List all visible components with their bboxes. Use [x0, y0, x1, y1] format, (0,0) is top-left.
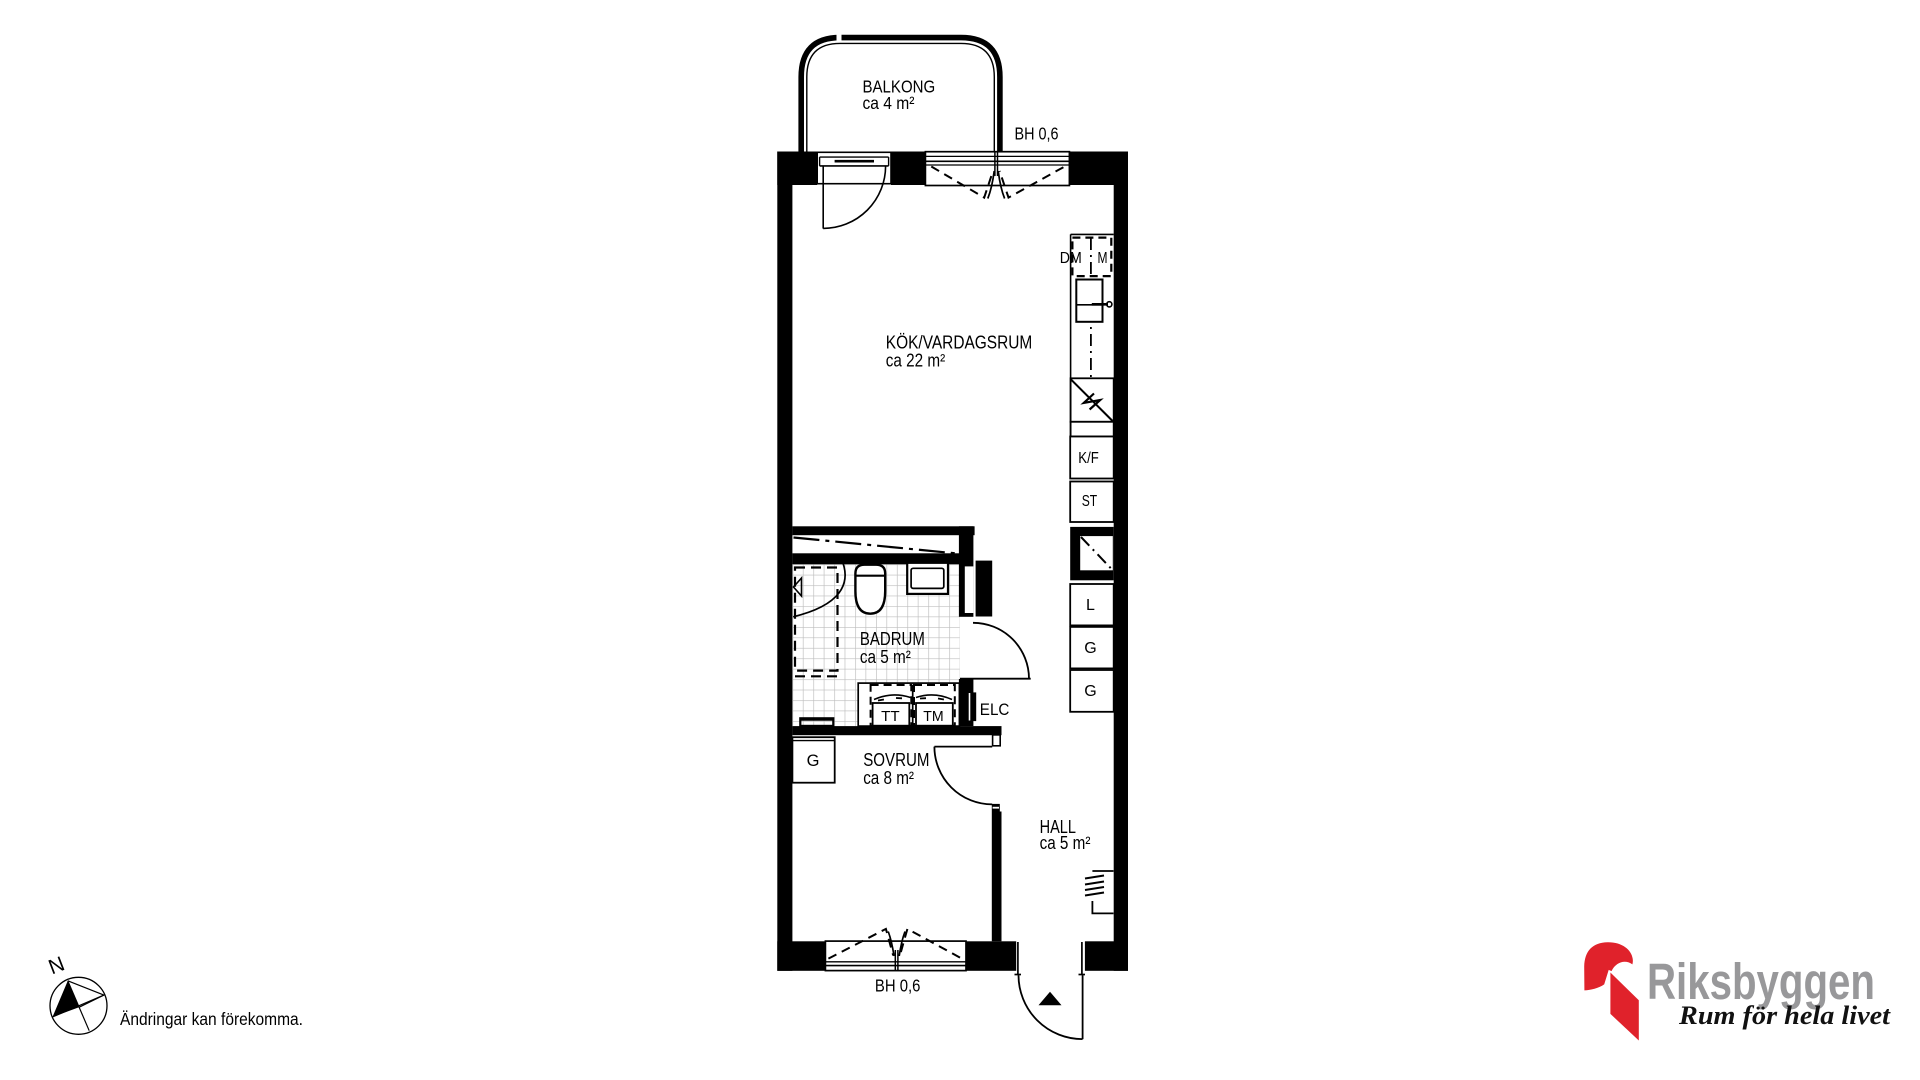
svg-text:TT: TT: [881, 708, 900, 725]
svg-text:SOVRUM: SOVRUM: [863, 750, 929, 770]
svg-text:G: G: [1084, 683, 1096, 700]
svg-text:ca 5 m²: ca 5 m²: [860, 647, 911, 667]
svg-text:K/F: K/F: [1078, 450, 1099, 467]
svg-text:KÖK/VARDAGSRUM: KÖK/VARDAGSRUM: [886, 333, 1033, 353]
svg-text:M: M: [1098, 250, 1108, 267]
svg-text:ELC: ELC: [980, 701, 1010, 719]
svg-text:TM: TM: [923, 708, 943, 725]
svg-text:ST: ST: [1082, 493, 1098, 510]
svg-text:ca 4 m²: ca 4 m²: [863, 93, 915, 113]
svg-text:G: G: [807, 752, 820, 770]
svg-text:G: G: [1084, 640, 1096, 657]
svg-text:L: L: [1086, 597, 1095, 614]
svg-text:ca 8 m²: ca 8 m²: [863, 768, 914, 788]
svg-text:BADRUM: BADRUM: [860, 629, 925, 649]
svg-text:BH 0,6: BH 0,6: [875, 976, 921, 996]
svg-text:BH 0,6: BH 0,6: [1015, 124, 1059, 144]
svg-text:ca 22 m²: ca 22 m²: [886, 351, 945, 371]
svg-text:Rum för hela livet: Rum för hela livet: [1678, 1001, 1891, 1030]
svg-text:Ändringar kan förekomma.: Ändringar kan förekomma.: [120, 1009, 303, 1029]
svg-text:DM: DM: [1060, 250, 1082, 267]
svg-text:ca 5 m²: ca 5 m²: [1040, 833, 1091, 853]
